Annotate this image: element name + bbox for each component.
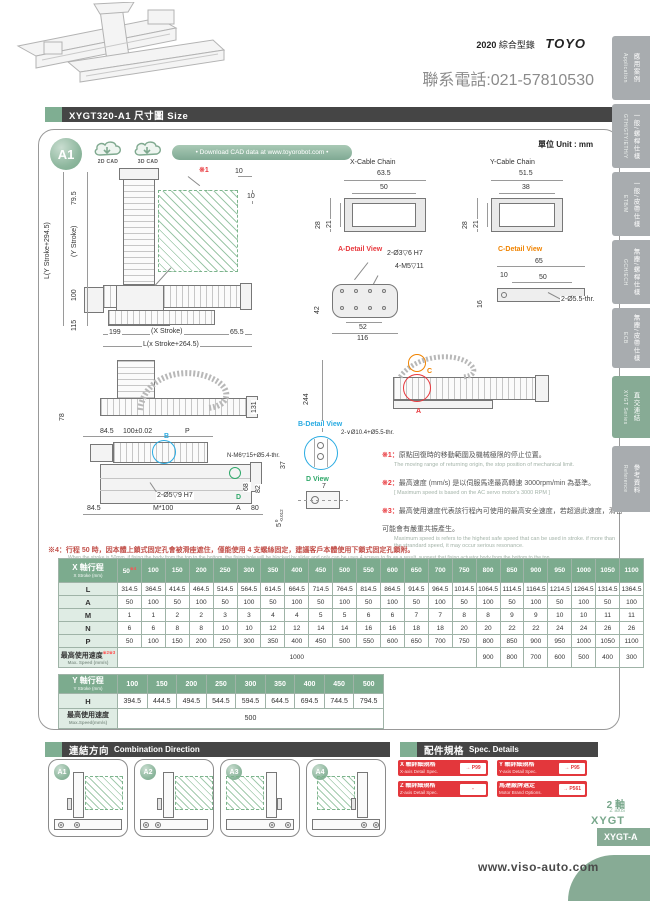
callout-2xo5: 2-Ø5▽9 H7 (156, 492, 194, 500)
bolt-icon (269, 822, 275, 828)
dim-ly-total: L(Y Stroke+294.5) (44, 221, 52, 280)
sidebar-tab-cleanroom-screw[interactable]: GCH/ECH 無塵/螺桿仕樣 (612, 240, 650, 304)
dim-52: 52 (358, 324, 368, 332)
dim-65: 65 (534, 258, 544, 266)
x-axis-base (54, 819, 122, 830)
page-reference-chip: → P99 (460, 763, 486, 774)
bolt-icon (373, 822, 379, 828)
page-reference-chip: - (460, 784, 486, 795)
dim-p: P (184, 428, 191, 436)
tab-en-label: ETB/M (622, 195, 628, 213)
dim-a: A (235, 505, 242, 513)
tab-zh-label: 一般/螺桿仕樣 (630, 112, 640, 160)
page-reference-chip: → P561 (559, 784, 585, 795)
spec-item-z-axis[interactable]: Z 軸詳細規格 Z-axis Detail Spec. - (398, 781, 488, 797)
sidebar-tab-application[interactable]: Application 應用案例 (612, 36, 650, 100)
slider (67, 798, 72, 810)
series-name: XYGT (591, 815, 625, 827)
note-tag: ※4： (48, 547, 66, 554)
y-axis-column (73, 772, 84, 818)
note-3: ※3：最高使用速度代表該行程內可使用的最高安全速度，若超過此速度，滑台可能會有嚴… (382, 500, 624, 550)
a-marker: A (415, 408, 422, 416)
note-en: [ Maximum speed is based on the AC servo… (394, 490, 624, 497)
dim-51-5: 51.5 (518, 170, 534, 178)
combination-direction-bar: 連結方向 Combination Direction (45, 742, 390, 757)
note-zh: 行程 50 時，因本體上鎖式固定孔會被滑座遮住，僅能使用 4 支螺絲固定，建議客… (66, 547, 414, 554)
slider (277, 798, 282, 810)
download-2d-cad-button[interactable]: 2D CAD (90, 139, 126, 165)
bolt-icon (58, 822, 64, 828)
cad-button-label: 3D CAD (130, 159, 166, 165)
chain-inner-section (499, 203, 555, 227)
tab-en-label: Application (622, 53, 628, 83)
x-stroke-table: X 軸行程X Stroke (mm)50※4100150200250300350… (58, 558, 644, 668)
tol-base: 5 (276, 523, 283, 527)
dim-79-5: 79.5 (71, 190, 79, 206)
dim-131: 131 (251, 400, 259, 414)
x-axis-base (140, 819, 208, 830)
dim-50: 50 (538, 274, 548, 282)
y-axis-column (123, 172, 155, 285)
catalog-page: 2020 綜合型錄 TOYO 聯系電話:021-57810530 Applica… (0, 0, 650, 901)
dim-38: 38 (521, 184, 531, 192)
dim-42: 42 (314, 305, 322, 315)
y-axis-column (163, 772, 174, 818)
tab-zh-label: 無塵/螺桿仕樣 (630, 248, 640, 296)
callout-2xo3: 2-Ø3▽6 H7 (386, 250, 424, 258)
tab-zh-label: 應用案例 (630, 53, 640, 83)
spec-item-motor-brand[interactable]: 馬達廠牌選定 Motor Brand Options. → P561 (497, 781, 587, 797)
note-zh: 最高使用速度代表該行程內可使用的最高安全速度，若超過此速度，滑台可能會有嚴重共振… (382, 508, 623, 533)
dim-21: 21 (326, 219, 334, 229)
cable-chain-loop (120, 362, 250, 414)
spec-item-en: X-axis Detail Spec. (400, 769, 460, 775)
dim-28: 28 (462, 220, 470, 230)
end-block (535, 375, 549, 402)
page-title-bar: XYGT320-A1 尺寸圖 Size (45, 107, 620, 122)
spec-item-en: Z-axis Detail Spec. (400, 790, 460, 796)
b-detail-marker-circle (152, 440, 176, 464)
contact-phone: 聯系電話:021-57810530 (422, 66, 594, 90)
y-stroke-range-hatch (158, 190, 238, 272)
dim-5-tolerance: 50-0.012 (274, 508, 284, 528)
dim-7: 7 (321, 483, 327, 491)
ref-note-1-marker: ※1 (198, 167, 210, 175)
d-marker: D (235, 494, 242, 502)
dim-x-stroke: (X Stroke) (150, 328, 184, 336)
cloud-download-icon (92, 139, 124, 159)
note-en: The moving range of returning origin, th… (394, 462, 624, 469)
dim-244: 244 (303, 392, 311, 406)
x-axis-end-cap (240, 283, 252, 310)
axis-count-en: 2 axis (609, 808, 625, 814)
callout-nm6: N-M6▽15+Ø5.4-thr. (226, 452, 281, 460)
dim-lx-total: L(x Stroke+264.5) (142, 341, 200, 349)
d-view-title: D View (306, 476, 329, 483)
combination-title-en: Combination Direction (114, 745, 200, 754)
y-axis-column (357, 772, 368, 818)
spec-item-zh: 馬達廠牌選定 (499, 783, 559, 790)
page-title: XYGT320-A1 尺寸圖 Size (69, 108, 188, 122)
d-view-marker-circle (229, 467, 241, 479)
sidebar-tab-xygt-series[interactable]: XYGT Series 直交連結 (612, 376, 650, 438)
slider-block (90, 444, 113, 462)
bolt-icon (361, 822, 367, 828)
model-tab-xygt-a[interactable]: XYGT-A (597, 828, 650, 846)
combination-card-a3: A3 (220, 759, 300, 837)
stroke-area-hatch (85, 776, 123, 810)
combination-badge: A2 (140, 764, 156, 780)
spec-item-zh: Z 軸詳細規格 (400, 783, 460, 790)
spec-item-y-axis[interactable]: Y 軸詳細規格 Y-axis Detail Spec. → P95 (497, 760, 587, 776)
x-axis-base (226, 819, 294, 830)
note-tag: ※3： (382, 508, 399, 515)
dim-116: 116 (356, 335, 369, 343)
a-detail-marker-circle (403, 374, 431, 402)
spec-item-zh: Y 軸詳細規格 (499, 762, 559, 769)
note-tag: ※2： (382, 480, 399, 487)
slider (157, 798, 162, 810)
tab-en-label: GCH/ECH (622, 259, 628, 286)
combination-badge: A1 (54, 764, 70, 780)
tab-zh-label: 一般/皮帶仕樣 (630, 180, 640, 228)
catalog-label: 綜合型錄 (499, 40, 535, 50)
green-accent-square (45, 742, 62, 757)
dim-100: 100 (71, 288, 79, 302)
bolt-icon (74, 822, 80, 828)
sidebar-tab-screw-series[interactable]: GTH/GTY/ETH/Y 一般/螺桿仕樣 (612, 104, 650, 168)
tab-zh-label: 參考資料 (630, 464, 640, 494)
product-line-art (8, 2, 236, 104)
bolt-icon (143, 822, 149, 828)
x-chain-title: X-Cable Chain (350, 159, 396, 166)
dim-115: 115 (71, 319, 79, 332)
dim-78: 78 (59, 412, 67, 422)
b-detail-title: B-Detail View (298, 421, 342, 428)
bolt-icon (285, 822, 291, 828)
dim-65-5: 65.5 (229, 329, 245, 337)
note-tag: ※1： (382, 452, 399, 459)
dim-10: 10 (499, 272, 509, 280)
dim-16: 16 (477, 299, 485, 309)
x-axis-base (312, 819, 380, 830)
sidebar-tab-cleanroom-belt[interactable]: ECB 無塵/皮帶仕樣 (612, 308, 650, 368)
dim-84-5-bottom: 84.5 (86, 505, 102, 513)
download-3d-cad-button[interactable]: 3D CAD (130, 139, 166, 165)
c-marker: C (426, 368, 433, 376)
dim-82: 82 (255, 484, 263, 494)
cad-button-label: 2D CAD (90, 159, 126, 165)
unit-label: 單位 Unit : mm (538, 139, 593, 150)
note-zh: 原點回復時的移動範圍及機械極限的停止位置。 (399, 452, 546, 459)
dim-y-stroke: (Y Stroke) (71, 225, 79, 258)
y-stroke-table: Y 軸行程Y Stroke (mm)1001502002503003504004… (58, 674, 384, 729)
note-zh: 最高速度 (mm/s) 是以伺服馬達最高轉速 3000rpm/min 為基準。 (399, 480, 595, 487)
combination-card-a2: A2 (134, 759, 214, 837)
bolt-icon (155, 822, 161, 828)
dim-100-tol: 100±0.02 (122, 428, 153, 436)
tol-lower: -0.012 (279, 509, 284, 522)
green-accent-square (45, 107, 62, 122)
cloud-download-icon (132, 139, 164, 159)
chain-inner-section (352, 203, 416, 227)
dim-10-side: 10 (246, 193, 256, 201)
dim-63-5: 63.5 (376, 170, 392, 178)
slider (351, 798, 356, 810)
dim-68: 68 (243, 482, 251, 492)
combination-title-zh: 連結方向 (69, 743, 109, 757)
catalog-year: 2020 (476, 40, 496, 50)
tab-en-label: Reference (622, 465, 628, 493)
dim-80: 80 (250, 505, 260, 513)
callout-4xm5: 4-M5▽11 (394, 263, 425, 271)
callout-2xo55: 2-Ø5.5-thr. (560, 296, 595, 304)
cable-chain-band (108, 310, 215, 325)
sidebar-tab-belt-series[interactable]: ETB/M 一般/皮帶仕樣 (612, 172, 650, 236)
green-accent-square (400, 742, 417, 757)
note-2: ※2：最高速度 (mm/s) 是以伺服馬達最高轉速 3000rpm/min 為基… (382, 472, 624, 497)
spec-item-x-axis[interactable]: X 軸詳細規格 X-axis Detail Spec. → P99 (398, 760, 488, 776)
sidebar-tab-reference[interactable]: Reference 參考資料 (612, 446, 650, 512)
dim-21: 21 (473, 219, 481, 229)
tab-zh-label: 無塵/皮帶仕樣 (630, 314, 640, 362)
dim-10-top: 10 (234, 168, 244, 176)
y-chain-title: Y-Cable Chain (490, 159, 535, 166)
dim-84-5-top: 84.5 (99, 428, 115, 436)
combination-card-a4: A4 (306, 759, 386, 837)
website-url: www.viso-auto.com (478, 860, 599, 874)
dim-199: 199 (108, 329, 122, 337)
note-1: ※1：原點回復時的移動範圍及機械極限的停止位置。 The moving rang… (382, 444, 624, 469)
spec-details-bar: 配件規格 Spec. Details (400, 742, 598, 757)
spec-item-en: Y-axis Detail Spec. (499, 769, 559, 775)
spec-details-title-en: Spec. Details (469, 745, 519, 754)
tab-en-label: ECB (622, 332, 628, 344)
brand-logo: TOYO (545, 36, 586, 51)
dim-m100: M*100 (152, 505, 174, 513)
page-reference-chip: → P95 (559, 763, 585, 774)
stroke-area-hatch (317, 776, 355, 810)
a-detail-title: A-Detail View (338, 246, 382, 253)
tab-zh-label: 直交連結 (630, 392, 640, 422)
dim-50: 50 (379, 184, 389, 192)
c-detail-marker-circle (408, 354, 426, 372)
spec-item-en: Motor Brand Options. (499, 790, 559, 796)
spec-details-title-zh: 配件規格 (424, 743, 464, 757)
y-axis-top-cap (119, 168, 159, 180)
tab-en-label: GTH/GTY/ETH/Y (622, 114, 628, 159)
stroke-area-hatch (226, 776, 264, 810)
callout-counterbore: 2-∨Ø10.4+Ø5.5-thr. (340, 429, 395, 437)
combination-card-a1: A1 (48, 759, 128, 837)
y-axis-column (266, 772, 277, 818)
spec-item-zh: X 軸詳細規格 (400, 762, 460, 769)
c-detail-title: C-Detail View (498, 246, 542, 253)
download-cad-pill[interactable]: • Download CAD data at www.toyorobot.com… (172, 145, 352, 160)
stroke-area-hatch (175, 776, 213, 810)
variant-badge: A1 (50, 138, 82, 170)
dim-37: 37 (280, 460, 288, 470)
catalog-title: 2020 綜合型錄 TOYO (476, 36, 586, 51)
tab-en-label: XYGT Series (622, 390, 628, 425)
dim-28: 28 (315, 220, 323, 230)
lower-rail (393, 400, 493, 409)
